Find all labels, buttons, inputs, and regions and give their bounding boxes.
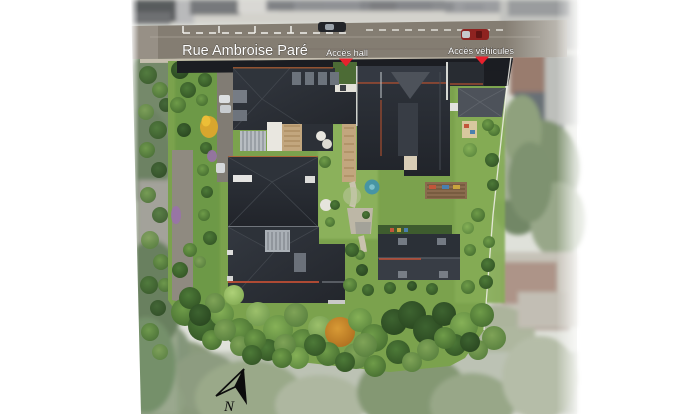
svg-text:Rue Ambroise Paré: Rue Ambroise Paré <box>182 43 308 59</box>
svg-text:Accès véhicules: Accès véhicules <box>448 46 514 56</box>
svg-text:Accès hall: Accès hall <box>326 48 368 58</box>
svg-text:N: N <box>223 399 235 414</box>
